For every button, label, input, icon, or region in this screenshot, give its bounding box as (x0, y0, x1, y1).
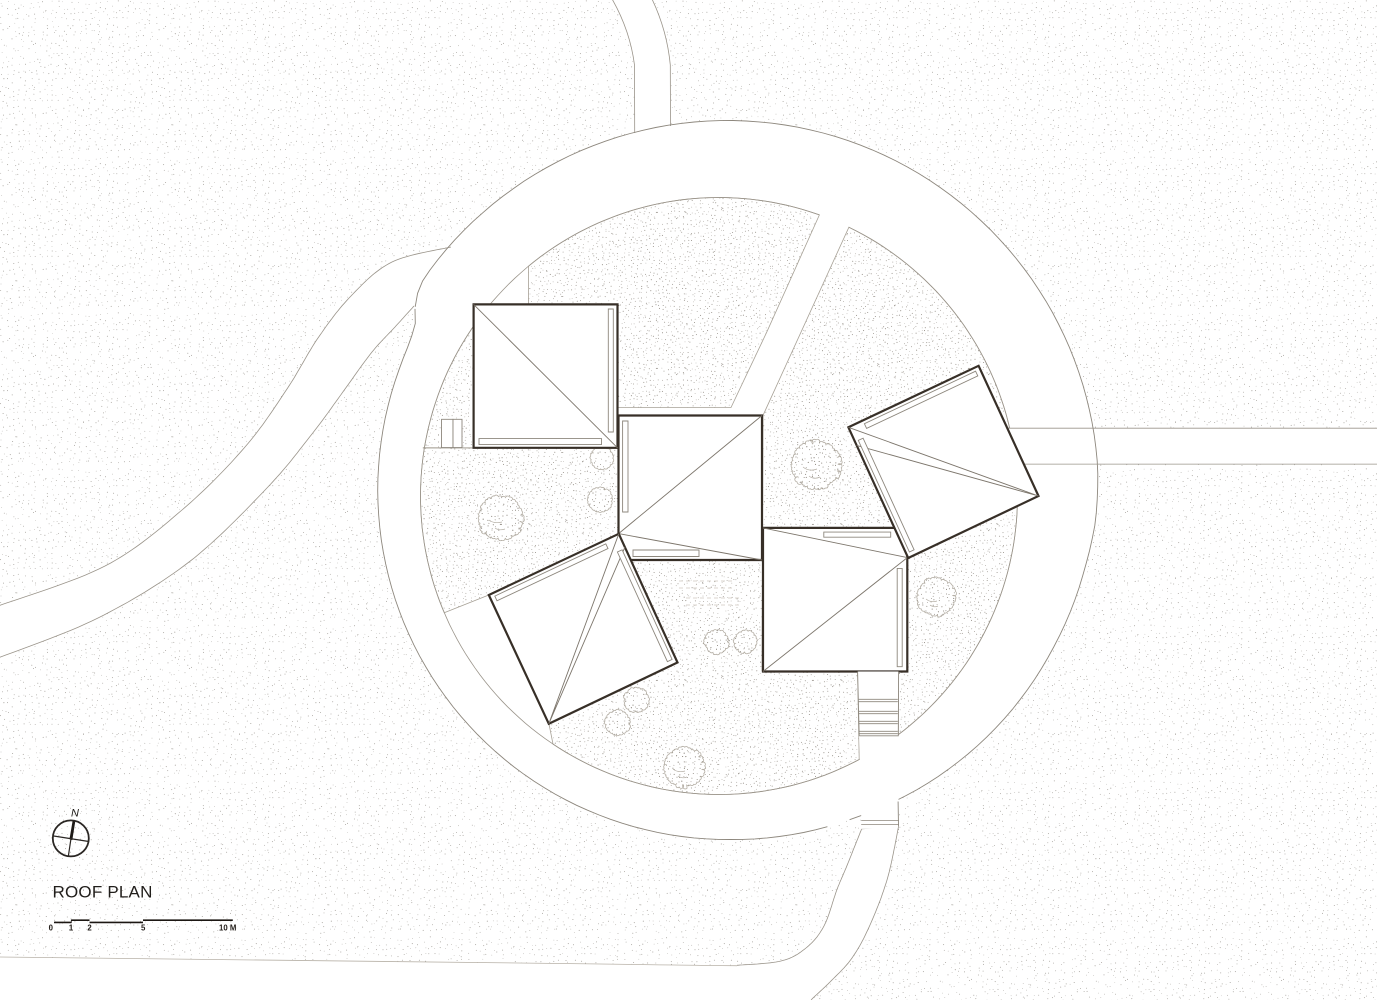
svg-text:ROOF PLAN: ROOF PLAN (53, 883, 153, 902)
svg-text:10 M: 10 M (219, 924, 236, 933)
svg-text:5: 5 (141, 924, 146, 933)
svg-text:1: 1 (69, 924, 74, 933)
svg-text:N: N (71, 808, 79, 820)
svg-text:0: 0 (49, 924, 54, 933)
svg-text:2: 2 (87, 924, 92, 933)
